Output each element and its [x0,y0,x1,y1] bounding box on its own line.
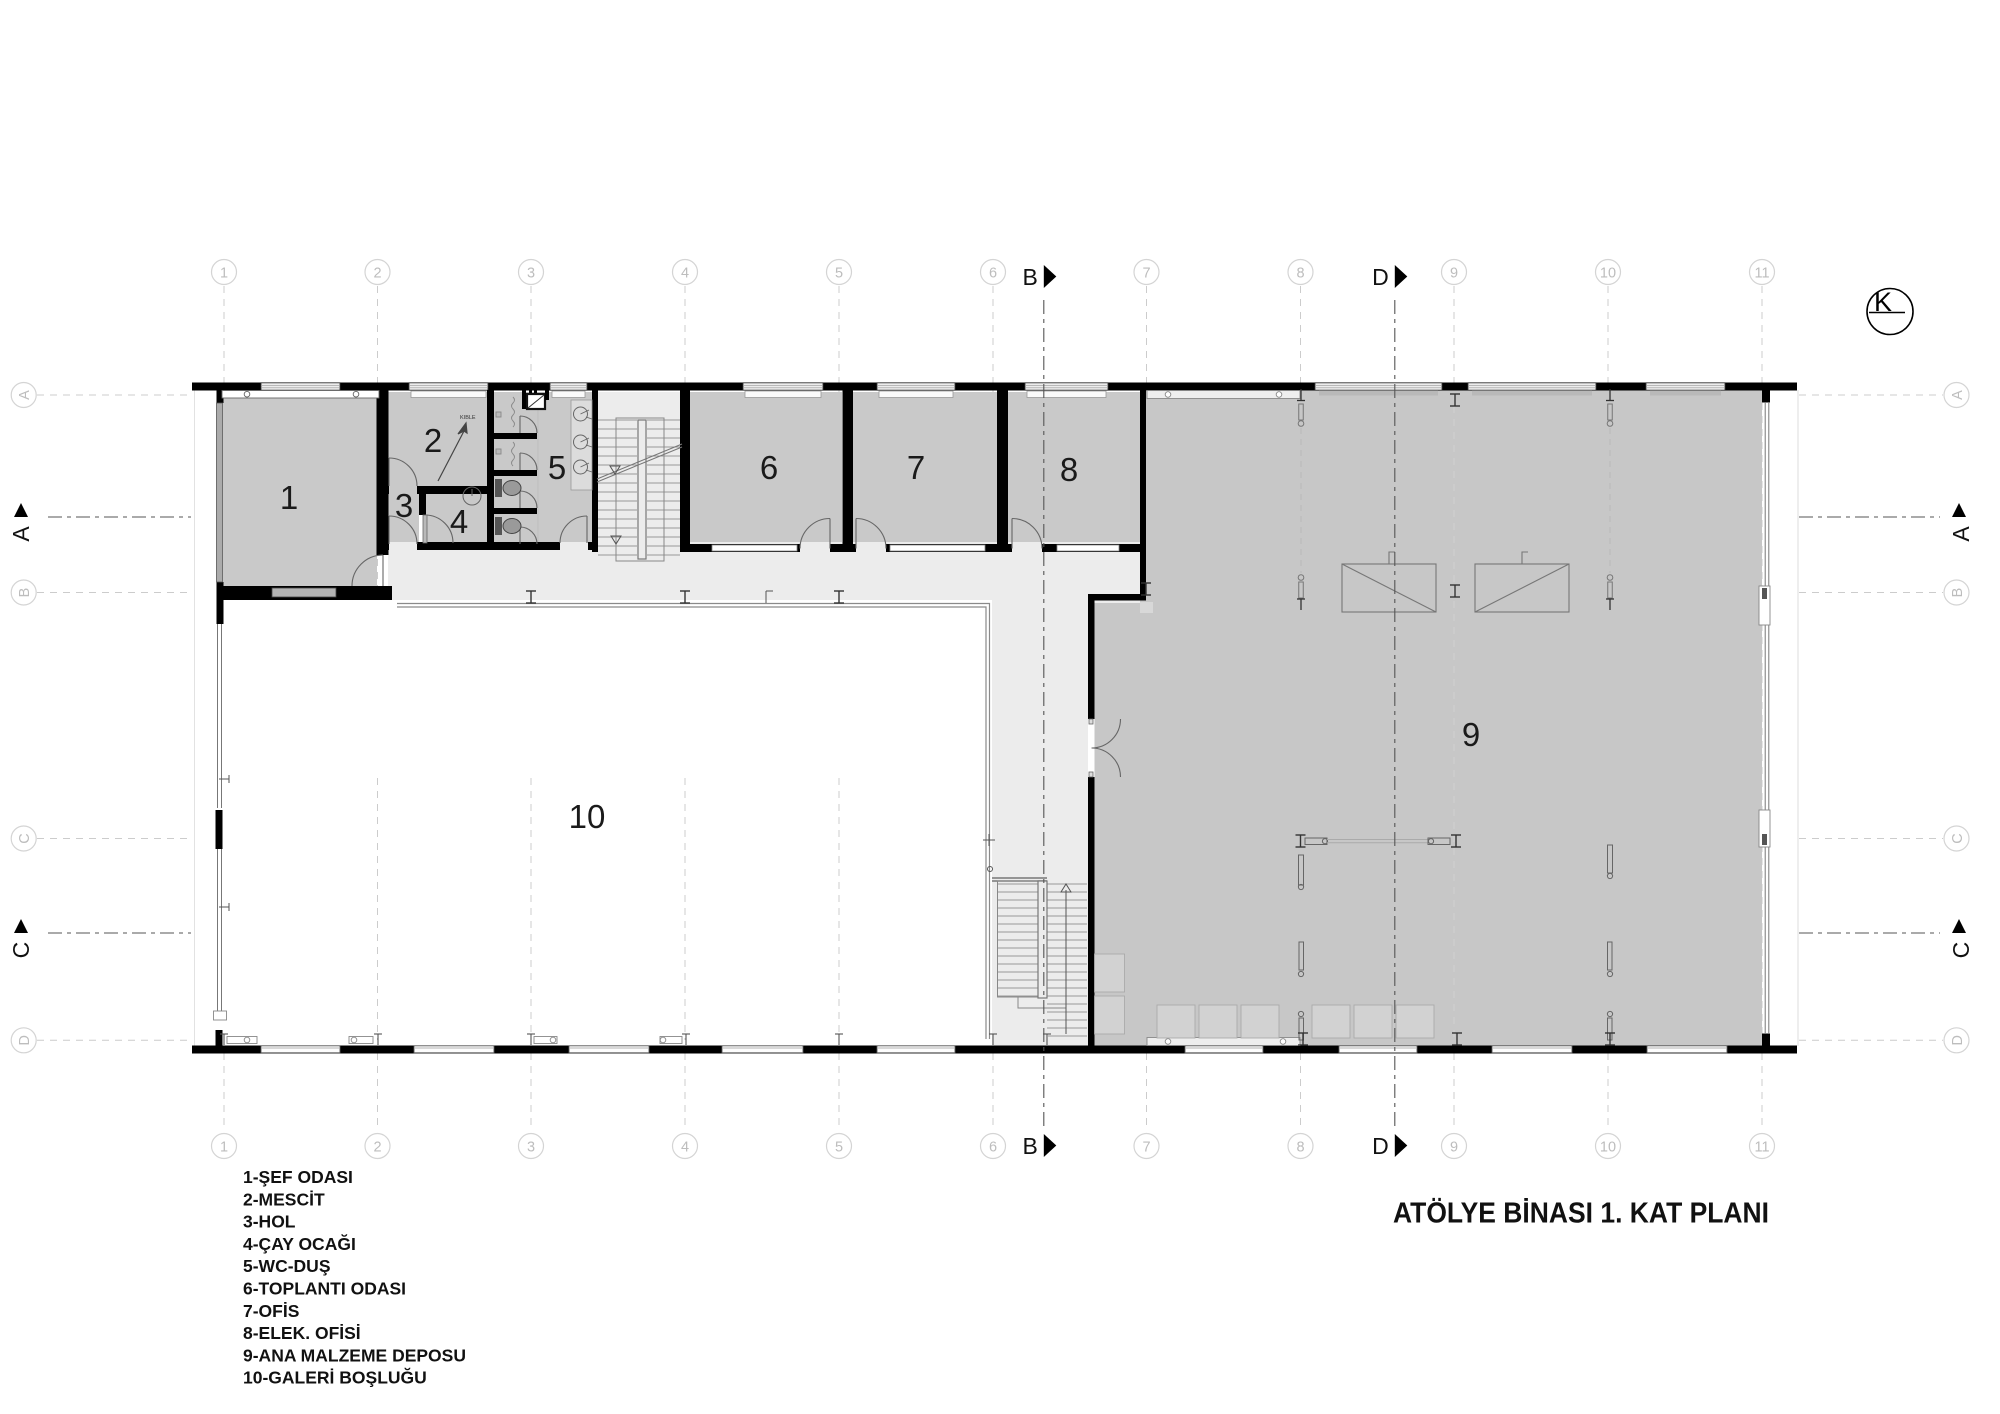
svg-text:9: 9 [1450,266,1458,282]
svg-text:4-ÇAY OCAĞI: 4-ÇAY OCAĞI [243,1233,356,1254]
svg-text:B: B [17,588,33,598]
svg-text:B: B [1022,1133,1037,1159]
svg-text:B: B [1950,588,1966,598]
svg-text:9: 9 [1450,1140,1458,1156]
svg-text:C: C [1950,833,1966,843]
svg-text:4: 4 [681,1140,689,1156]
svg-text:5: 5 [548,449,566,486]
svg-text:4: 4 [450,503,468,540]
svg-text:1: 1 [220,266,228,282]
svg-text:1: 1 [280,479,298,516]
svg-text:8: 8 [1296,1140,1304,1156]
svg-text:ATÖLYE BİNASI 1. KAT PLANI: ATÖLYE BİNASI 1. KAT PLANI [1393,1197,1769,1230]
svg-text:7: 7 [1142,266,1150,282]
svg-text:B: B [1022,264,1037,290]
svg-text:C: C [1948,942,1974,959]
svg-text:D: D [1372,1133,1389,1159]
svg-text:2: 2 [424,422,442,459]
svg-text:11: 11 [1754,266,1769,282]
svg-text:3: 3 [395,487,413,524]
svg-text:D: D [1950,1035,1966,1045]
svg-text:D: D [1372,264,1389,290]
svg-text:6-TOPLANTI ODASI: 6-TOPLANTI ODASI [243,1279,406,1299]
svg-text:2: 2 [373,1140,381,1156]
svg-text:11: 11 [1754,1140,1769,1156]
svg-text:A: A [8,526,34,542]
svg-text:6: 6 [760,449,778,486]
svg-text:3: 3 [527,266,535,282]
svg-text:1-ŞEF ODASI: 1-ŞEF ODASI [243,1167,353,1187]
svg-text:C: C [17,833,33,843]
svg-text:3-HOL: 3-HOL [243,1212,296,1232]
svg-text:1: 1 [220,1140,228,1156]
svg-text:10: 10 [1600,266,1616,282]
svg-text:6: 6 [989,266,997,282]
svg-text:5-WC-DUŞ: 5-WC-DUŞ [243,1256,331,1276]
svg-text:8: 8 [1060,451,1078,488]
svg-text:2: 2 [373,266,381,282]
svg-text:3: 3 [527,1140,535,1156]
svg-text:5: 5 [835,1140,843,1156]
svg-text:7: 7 [1142,1140,1150,1156]
svg-text:5: 5 [835,266,843,282]
svg-text:10: 10 [569,798,606,835]
svg-text:A: A [1950,390,1966,400]
svg-text:KIBLE: KIBLE [460,415,476,421]
svg-text:7-OFİS: 7-OFİS [243,1301,299,1321]
svg-text:8-ELEK. OFİSİ: 8-ELEK. OFİSİ [243,1323,361,1343]
svg-text:A: A [17,390,33,400]
svg-text:2-MESCİT: 2-MESCİT [243,1189,325,1209]
svg-text:9-ANA MALZEME DEPOSU: 9-ANA MALZEME DEPOSU [243,1345,466,1365]
svg-text:8: 8 [1296,266,1304,282]
svg-text:6: 6 [989,1140,997,1156]
svg-text:10-GALERİ BOŞLUĞU: 10-GALERİ BOŞLUĞU [243,1367,427,1388]
svg-text:7: 7 [907,449,925,486]
svg-text:9: 9 [1462,716,1480,753]
svg-text:D: D [17,1035,33,1045]
svg-text:C: C [8,942,34,959]
svg-text:4: 4 [681,266,689,282]
svg-text:10: 10 [1600,1140,1616,1156]
svg-text:A: A [1948,526,1974,542]
